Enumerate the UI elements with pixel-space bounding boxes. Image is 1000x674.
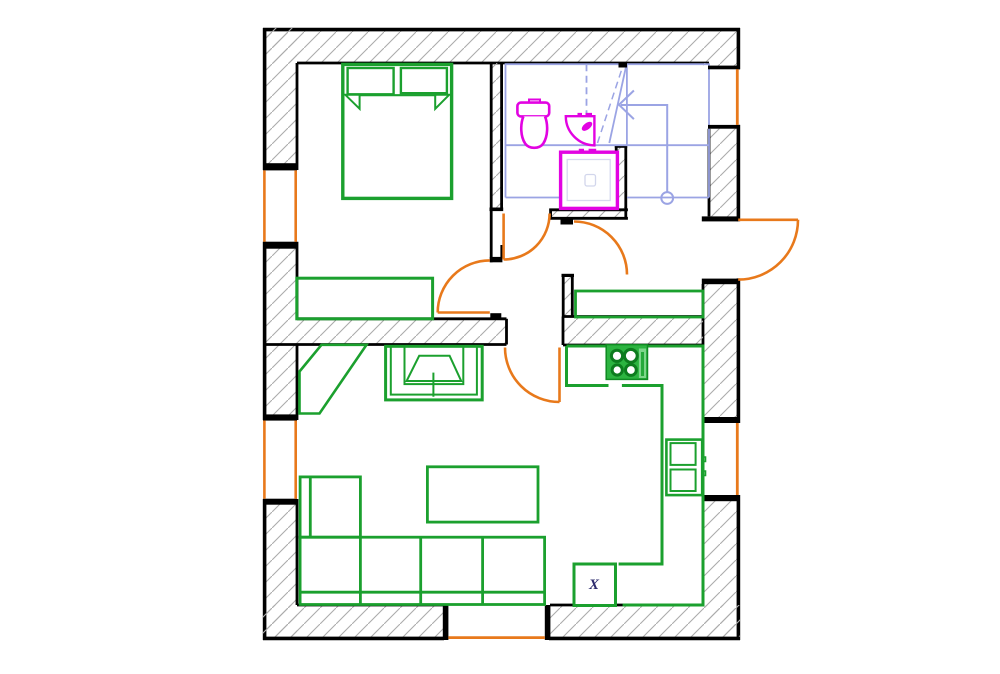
svg-text:X: X — [588, 577, 600, 593]
